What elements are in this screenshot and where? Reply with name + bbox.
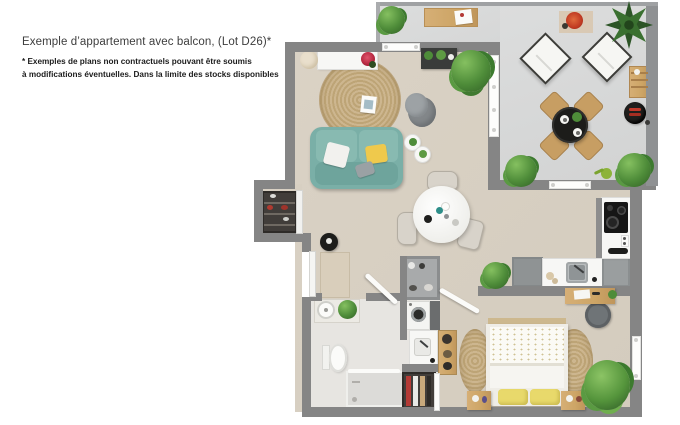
shower-drain [352, 397, 357, 402]
wardrobe-open-door [434, 373, 440, 411]
door-dot [492, 108, 496, 112]
corner-plant [451, 50, 491, 92]
cabinet-item-white [270, 194, 276, 198]
table-plate-gray [452, 219, 459, 226]
table-cup-teal [436, 207, 443, 214]
nightstand-item [576, 396, 582, 402]
side-table-candle [326, 238, 332, 244]
knob [623, 237, 626, 240]
wall-bath-niche [400, 256, 407, 340]
nightstand-lamp [472, 395, 479, 402]
cabinet-item-red [281, 205, 288, 210]
side-table-plant [419, 150, 427, 158]
console-flower-leaf [369, 61, 376, 68]
desk-plant [608, 290, 617, 299]
table-item [444, 214, 449, 219]
kitchen-counter-gray [512, 257, 543, 287]
shelf-basket [443, 350, 452, 358]
vanity1-drain [324, 308, 328, 312]
balcony-strip-plant [378, 6, 405, 34]
grill-knob [645, 120, 650, 125]
entry-doormat [320, 252, 350, 298]
nightstand-lamp [566, 395, 573, 402]
cabinet-cup [634, 69, 640, 75]
bed-cushion-yellow-left [498, 389, 528, 405]
closet-item [409, 285, 417, 291]
vanity2-soap [430, 358, 435, 363]
counter-bowl [552, 278, 558, 284]
entry-shoe-cabinet [262, 191, 297, 233]
grill-skewer [629, 108, 641, 111]
balcony-plant-left [505, 155, 537, 187]
wardrobe-clothes-dark [427, 376, 431, 406]
cabinet-item-white [283, 217, 289, 221]
counter-knob [592, 277, 597, 282]
door-dot [492, 60, 496, 64]
burner-small [607, 205, 613, 211]
window-handle [634, 374, 638, 378]
table-bowl-black [424, 215, 432, 223]
closet-item [419, 263, 425, 269]
hallway-plant [482, 262, 509, 289]
wall-left-upper [285, 42, 295, 189]
cabinet-shelf [264, 202, 295, 204]
pouf-beige [300, 51, 318, 69]
shelf-plant [424, 51, 433, 60]
balcony-plate-item [563, 118, 567, 122]
nightstand-item [482, 396, 487, 403]
shelf-plant [436, 50, 446, 60]
wardrobe-clothes-red [406, 376, 411, 406]
wardrobe-clothes-tan [420, 376, 425, 406]
knob [623, 242, 626, 245]
shower-glass [348, 369, 400, 373]
balcony-plant-right [617, 153, 651, 187]
washer-door [411, 307, 426, 322]
bench-paper-mark [460, 13, 464, 17]
grill-skewer [629, 113, 641, 116]
floor-plan [0, 0, 680, 425]
bench-paper [454, 9, 473, 25]
bed-blanket [490, 366, 564, 388]
burner-large [606, 216, 619, 229]
bed-duvet [490, 327, 564, 364]
balcony-palm-plant [604, 1, 654, 49]
window-handle [551, 183, 555, 187]
rug-photo-image [364, 100, 374, 110]
closet-item [424, 284, 433, 291]
bed-cushion-yellow-right [530, 389, 560, 405]
door-dot [492, 128, 496, 132]
laundry-shelf [430, 301, 440, 330]
ottoman-gray-small [405, 93, 428, 117]
burner-medium [617, 206, 626, 215]
bedroom-plant [584, 360, 630, 410]
washer-knob [409, 303, 412, 306]
nook-sliding-door [296, 190, 303, 234]
flower-mat-blossom [566, 12, 583, 29]
side-table-plant [409, 138, 417, 146]
window-handle [414, 45, 418, 49]
shelf-basket [442, 334, 452, 344]
cabinet-shelf [264, 213, 295, 215]
cabinet-shelf [264, 224, 295, 226]
window-handle [585, 183, 589, 187]
balcony-table [552, 107, 588, 143]
cabinet-item-red [267, 205, 273, 210]
shower-fixture [352, 381, 360, 383]
desk-chair [585, 302, 611, 328]
fridge [602, 257, 630, 287]
vanity-plant [338, 300, 357, 319]
entry-door [309, 251, 316, 297]
door-dot [492, 85, 496, 89]
wall-right [630, 186, 642, 417]
toilet-bowl [329, 344, 347, 372]
cabinet-slat [631, 86, 648, 88]
balcony-plate-item [576, 131, 580, 135]
window-handle [634, 338, 638, 342]
flyer-page: Exemple d’appartement avec balcon, (Lot … [0, 0, 680, 425]
wall-bath-stub [402, 364, 440, 372]
oven-handle [608, 248, 628, 254]
closet-item [408, 262, 415, 269]
wall-kitchen-column [596, 198, 602, 258]
nightstand-left [467, 391, 491, 410]
wardrobe-clothes-white [413, 376, 418, 406]
dining-table [413, 186, 470, 243]
flower-mat-leaf [562, 23, 568, 29]
balcony-table-plant [572, 112, 582, 122]
desk-papers [574, 289, 591, 299]
desk-pen [592, 292, 600, 295]
shelf-basket [443, 362, 452, 370]
window-handle [384, 45, 388, 49]
cabinet-slat [631, 79, 648, 81]
